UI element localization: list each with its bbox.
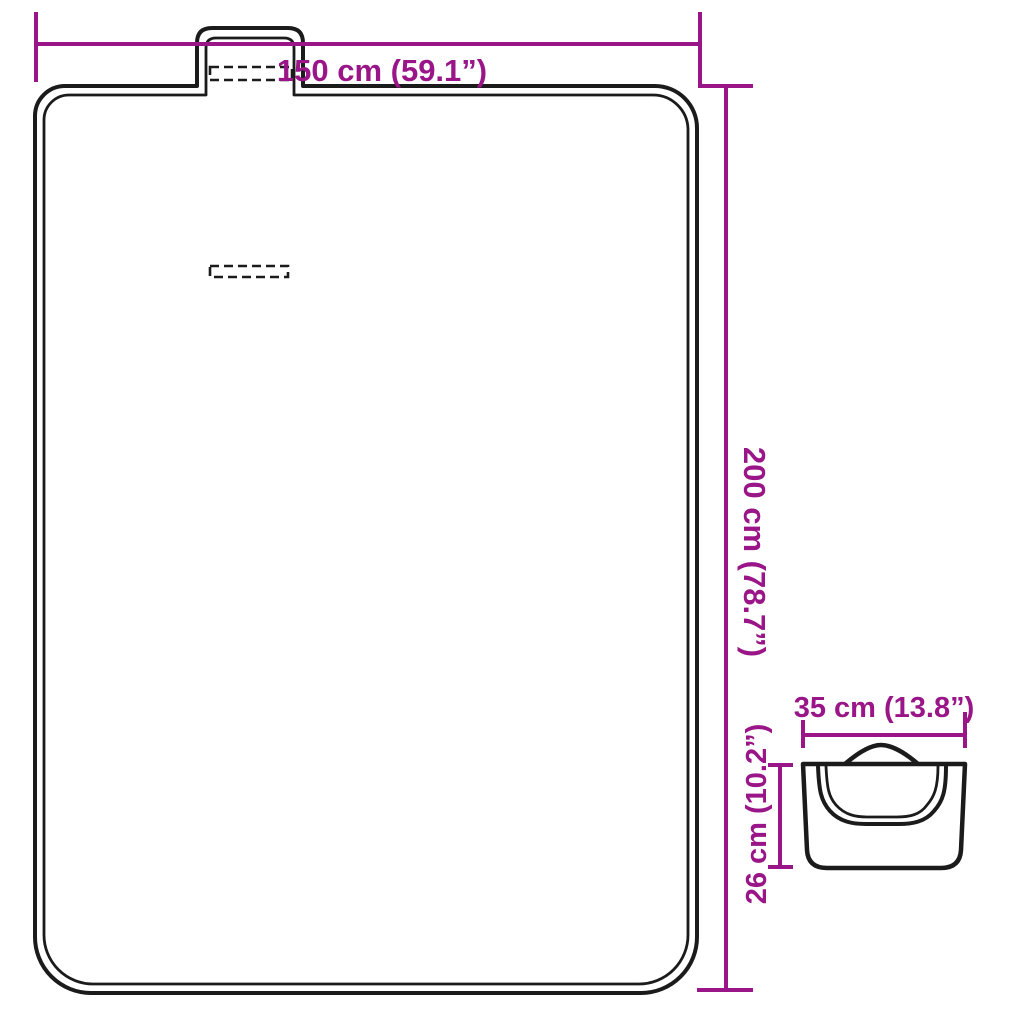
blanket-outline — [35, 28, 697, 993]
folded-bag — [803, 745, 965, 868]
blanket-width-label: 150 cm (59.1”) — [277, 53, 487, 88]
blanket-height-label: 200 cm (78.7”) — [737, 447, 772, 657]
diagram-canvas: 150 cm (59.1”) 200 cm (78.7”) 35 cm (13.… — [0, 0, 1024, 1024]
strap-stitch-line-center — [210, 266, 288, 277]
product-dimension-diagram: 150 cm (59.1”) 200 cm (78.7”) 35 cm (13.… — [0, 0, 1024, 1024]
blanket-outline-outer — [35, 28, 697, 993]
bag-handle — [845, 745, 918, 764]
bag-width-label: 35 cm (13.8”) — [794, 692, 975, 724]
blanket-width-dimension: 150 cm (59.1”) — [36, 12, 700, 88]
bag-width-dimension: 35 cm (13.8”) — [794, 692, 975, 748]
bag-height-dimension: 26 cm (10.2”) — [741, 724, 793, 905]
bag-height-label: 26 cm (10.2”) — [741, 724, 773, 905]
blanket-outline-inner — [44, 38, 688, 984]
